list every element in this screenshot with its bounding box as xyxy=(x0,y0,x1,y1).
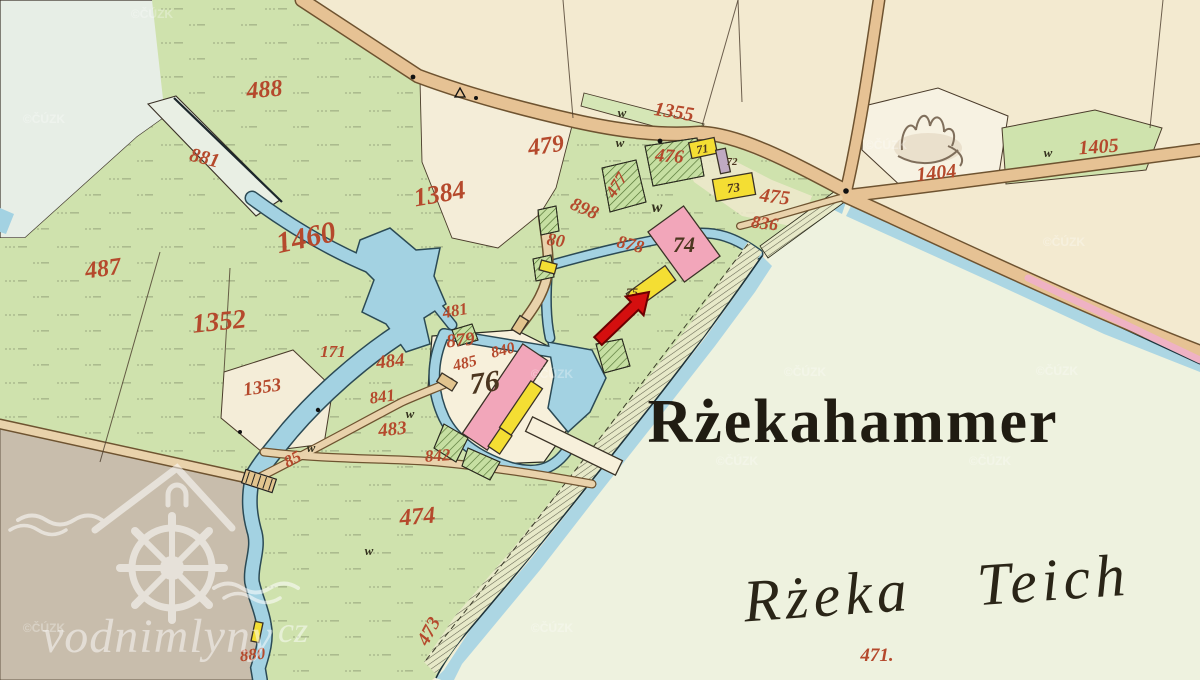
parcel-label-476: 476 xyxy=(653,145,684,168)
parcel-label-488: 488 xyxy=(244,76,283,105)
cuzk-watermark: ©ČÚZK xyxy=(716,453,759,468)
parcel-label-479: 479 xyxy=(525,131,565,162)
parcel-label-71: 71 xyxy=(695,141,709,157)
cuzk-watermark: ©ČÚZK xyxy=(1043,234,1086,249)
meadow-w-mark: w xyxy=(1044,145,1053,160)
parcel-label-484: 484 xyxy=(374,350,406,374)
meadow-w-mark: w xyxy=(307,440,316,455)
parcel-label-171: 171 xyxy=(320,342,346,361)
cuzk-watermark: ©ČÚZK xyxy=(531,366,574,381)
place-name-title: Rżekahammer xyxy=(647,388,1058,456)
meadow-w-mark: w xyxy=(652,199,663,216)
parcel-label-76: 76 xyxy=(468,364,502,401)
parcel-label-842: 842 xyxy=(424,445,451,466)
parcel-label-487: 487 xyxy=(82,254,123,285)
parcel-label-74: 74 xyxy=(673,232,695,257)
parcel-label-841: 841 xyxy=(368,385,396,407)
parcel-label-471.: 471. xyxy=(859,645,893,666)
parcel-label-474: 474 xyxy=(397,503,436,532)
cuzk-watermark: ©ČÚZK xyxy=(531,620,574,635)
parcel-label-1352: 1352 xyxy=(191,303,248,338)
parcel-label-879: 879 xyxy=(445,329,476,353)
parcel-label-73: 73 xyxy=(726,179,741,196)
meadow-w-mark: w xyxy=(406,406,415,421)
cuzk-watermark: ©ČÚZK xyxy=(865,137,908,152)
cadastral-map[interactable]: Rżekahammer Rżeka Teich 4888811460487135… xyxy=(0,0,1200,680)
parcel-label-1405: 1405 xyxy=(1078,135,1119,160)
watermark-site-name: vodnimlyny xyxy=(42,610,273,663)
cuzk-watermark: ©ČÚZK xyxy=(969,453,1012,468)
parcel-label-80: 80 xyxy=(546,229,567,251)
meadow-w-mark: w xyxy=(618,105,627,120)
cuzk-watermark: ©ČÚZK xyxy=(23,111,66,126)
meadow-w-mark: w xyxy=(616,135,625,150)
cuzk-watermark: ©ČÚZK xyxy=(784,364,827,379)
parcel-label-483: 483 xyxy=(376,418,408,442)
cuzk-watermark: ©ČÚZK xyxy=(131,6,174,21)
parcel-label-72: 72 xyxy=(727,156,739,168)
meadow-w-mark: w xyxy=(365,543,374,558)
parcel-label-836: 836 xyxy=(750,211,779,234)
watermark-tld: cz xyxy=(278,610,308,650)
map-screenshot: Rżekahammer Rżeka Teich 4888811460487135… xyxy=(0,0,1200,680)
parcel-label-1404: 1404 xyxy=(915,160,957,186)
parcel-label-475: 475 xyxy=(758,184,791,210)
cuzk-watermark: ©ČÚZK xyxy=(1036,363,1079,378)
